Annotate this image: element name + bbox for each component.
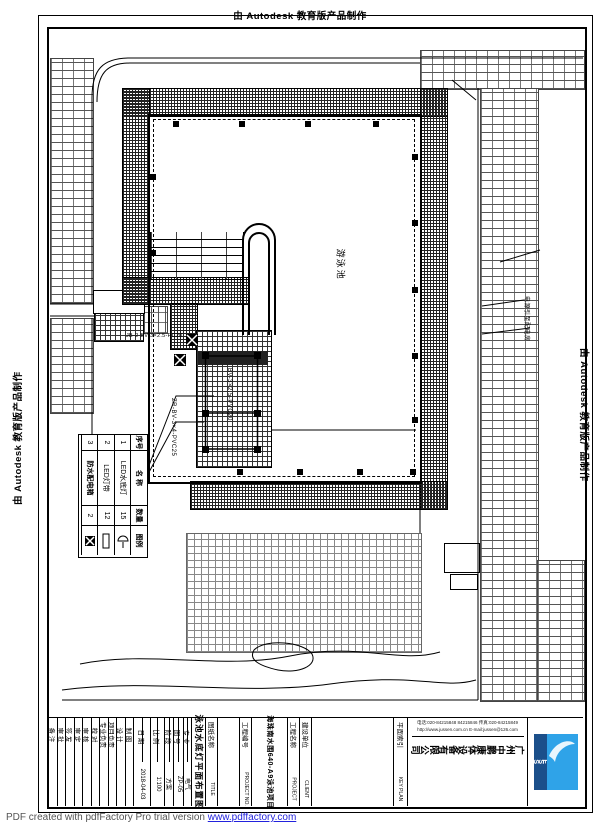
spacer-cell-1: [218, 718, 240, 806]
logo-cell: USSEN: [528, 718, 583, 806]
pool-deck-band-top: [122, 88, 448, 117]
annotation-cable-main: BV-3×2.5-PVC20: [226, 368, 232, 421]
brick-paving-top-right: [420, 50, 585, 90]
drawing-title: 泳池水底灯平面布置图: [193, 714, 205, 809]
pool-label: 游泳池: [336, 248, 345, 279]
project-name-cell: 海珠南水围640-A9泳池项目: [252, 718, 288, 806]
company-cell: 电话:020-84215848 84215846 传真:020-84215849…: [408, 718, 528, 806]
client-value-cell: [312, 718, 394, 806]
legend-header-symbol: 图例: [131, 526, 148, 555]
legend-header-name: 名 称: [131, 451, 148, 506]
annotation-box-circuit: JB-2 BV-3×2.5-PC20: [126, 333, 183, 339]
drawing-title-label-cell: 图纸名称 TITLE: [206, 718, 218, 806]
field-discipline: 专 业 电气: [184, 718, 192, 806]
logo-swoosh: [547, 734, 578, 790]
led-strip-icon: [98, 526, 115, 555]
brick-paving-left-upper: [50, 58, 94, 304]
brick-paving-left-lower: [50, 318, 94, 414]
equipment-platform: [196, 330, 272, 468]
pool-deck-band-bottom: [190, 481, 448, 510]
drawing-title-cell: 泳池水底灯平面布置图: [192, 718, 206, 806]
autodesk-stamp-top: 由 Autodesk 教育版产品制作: [0, 8, 600, 22]
company-contact-1: 电话:020-84215848 84215846 传真:020-84215849: [410, 720, 526, 727]
legend-row1-qty: 15: [114, 506, 131, 526]
legend-row2-name: LED灯带: [98, 451, 115, 506]
autodesk-stamp-right: 由 Autodesk 教育版产品制作: [578, 348, 592, 482]
brick-paving-bottom-right: [537, 560, 585, 702]
client-label-cell: 建设单位 CLIENT: [300, 718, 312, 806]
legend-row3-no: 3: [81, 435, 98, 451]
planter-box-1: [444, 543, 480, 573]
company-contact-2: http://www.jussen.com.cn E-mail:jussen@1…: [410, 727, 526, 734]
project-label-cell: 工程名称 PROJECT: [288, 718, 300, 806]
underwater-light-icon: [114, 526, 131, 555]
legend-row3-qty: 2: [81, 506, 98, 526]
legend-header-qty: 数量: [131, 506, 148, 526]
legend-table: 序号 名 称 数量 图例 1 LED水底灯 15 2 LED灯带 12 3 防水…: [78, 434, 146, 556]
legend-row3-name: 防水配电箱: [81, 451, 98, 506]
field-date: 日 期 2018-04-03: [134, 718, 151, 806]
pool-deck-band-left: [122, 88, 150, 304]
company-divider: [412, 736, 524, 737]
autodesk-stamp-left: 由 Autodesk 教育版产品制作: [10, 371, 24, 505]
legend-header-no: 序号: [131, 435, 148, 451]
pool-deck-band-right: [420, 88, 448, 510]
annotation-cable-left: ZR-BV-3×4-PVC25: [170, 398, 176, 456]
field-scale: 比 例 1:100: [151, 718, 165, 806]
pdffactory-link[interactable]: www.pdffactory.com: [208, 812, 297, 823]
pool-stairs: [150, 232, 244, 280]
planter-box-2: [450, 574, 478, 590]
logo-text: USSEN: [534, 734, 547, 790]
pdf-footer-text: PDF created with pdfFactory Pro trial ve…: [6, 812, 208, 823]
title-block: 备 注 审 批 签 发 审 定 审 核 校 对 专业负责 项目负责 设 计 制 …: [49, 717, 583, 806]
sig-label-draft: 制 图: [124, 728, 134, 743]
led-strip-perimeter: [153, 119, 415, 477]
project-no-label-cell: 工程编号 PROJECT NO.: [240, 718, 252, 806]
legend-row1-no: 1: [114, 435, 131, 451]
legend-row2-no: 2: [98, 435, 115, 451]
project-name: 海珠南水围640-A9泳池项目: [265, 715, 275, 808]
company-logo: USSEN: [534, 734, 578, 790]
brick-paving-right: [480, 88, 539, 702]
annotation-power-note: 电源引至配电房: [523, 296, 532, 342]
pdf-footer: PDF created with pdfFactory Pro trial ve…: [6, 812, 296, 823]
legend-row1-name: LED水底灯: [114, 451, 131, 506]
distribution-box-icon: [81, 526, 98, 555]
keyplan-label-cell: 平面索引 KEY PLAN: [394, 718, 408, 806]
bottom-paving-grid: [186, 533, 422, 653]
legend-row2-qty: 12: [98, 506, 115, 526]
company-name: 司公限有备设体康鹏中州广: [411, 743, 525, 757]
